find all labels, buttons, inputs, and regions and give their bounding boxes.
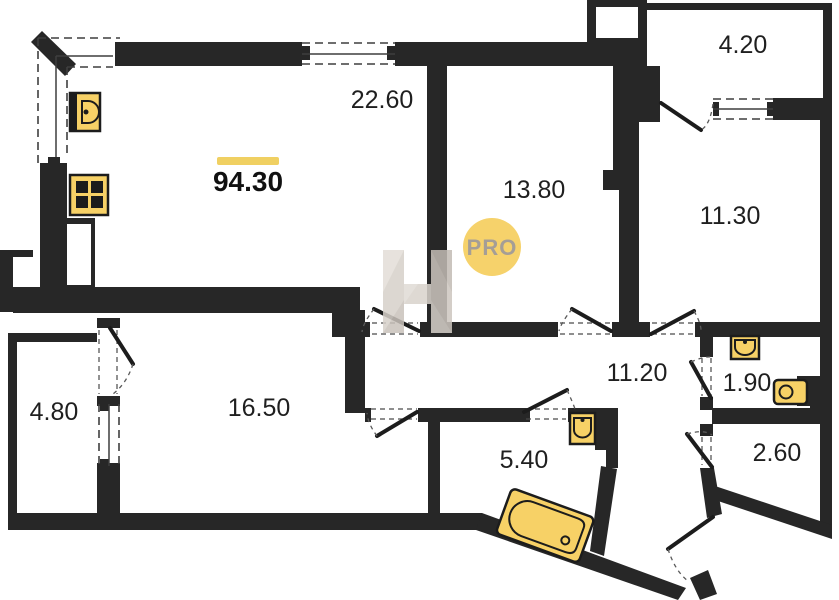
room-area-label-loggia: 4.80 — [30, 398, 79, 426]
room-area-label-room-c: 16.50 — [228, 394, 291, 422]
walls-orthogonal — [0, 0, 832, 534]
room-area-label-room-b: 11.30 — [700, 202, 761, 230]
room-area-label-balcony: 4.20 — [719, 31, 768, 59]
bath-sink-icon — [570, 413, 595, 444]
total-area-value: 94.30 — [213, 166, 283, 197]
door-jamb-dashes — [99, 323, 711, 465]
stove-icon — [70, 175, 108, 215]
vent-shaft-niche — [596, 7, 638, 38]
toilet-icon — [774, 380, 807, 404]
room-area-label-living-kitchen: 22.60 — [351, 86, 414, 114]
wc-sink-icon — [731, 336, 759, 359]
watermark-letter-h — [383, 250, 452, 333]
pro-badge-text: PRO — [467, 235, 518, 260]
room-area-label-bathroom: 5.40 — [500, 446, 549, 474]
bathtub-icon — [496, 488, 595, 563]
window-glass-lines — [56, 54, 773, 466]
watermark: PRO — [383, 218, 521, 333]
kitchen-duct-niche — [67, 224, 91, 285]
floor-plan: PRO 22.60 13.80 11.30 4.20 16.50 4.80 11… — [0, 0, 839, 600]
kitchen-sink-icon — [70, 93, 100, 131]
room-area-label-closet: 2.60 — [753, 439, 802, 467]
room-area-label-wc: 1.90 — [723, 369, 772, 397]
total-area: 94.30 — [213, 157, 283, 197]
total-area-underline — [217, 157, 279, 165]
room-labels: 22.60 13.80 11.30 4.20 16.50 4.80 11.20 … — [30, 31, 802, 474]
room-area-label-hallway: 11.20 — [607, 359, 668, 387]
room-area-label-room-a: 13.80 — [503, 176, 566, 204]
floor-plan-page: PRO 22.60 13.80 11.30 4.20 16.50 4.80 11… — [0, 0, 839, 600]
